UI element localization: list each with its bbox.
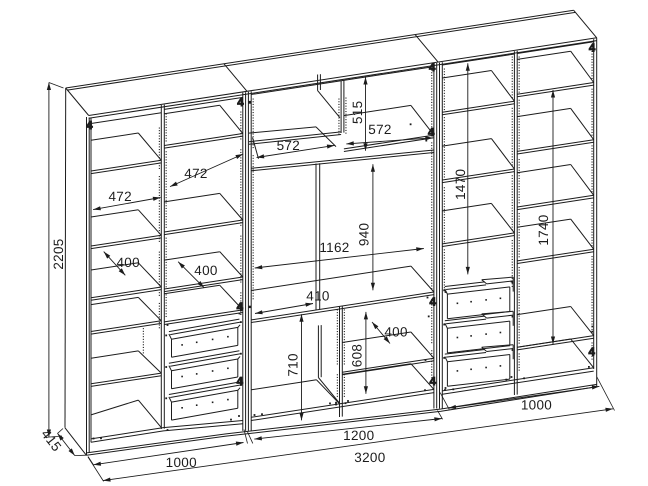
svg-text:1000: 1000 [166, 455, 197, 470]
svg-text:3200: 3200 [354, 450, 385, 465]
svg-text:472: 472 [108, 189, 131, 204]
svg-text:572: 572 [368, 122, 391, 137]
svg-text:4: 4 [429, 62, 436, 74]
svg-text:400: 400 [384, 324, 407, 339]
svg-text:4: 4 [429, 296, 436, 308]
svg-text:4: 4 [589, 42, 596, 54]
svg-text:4: 4 [429, 376, 436, 388]
svg-text:515: 515 [350, 101, 365, 124]
svg-text:410: 410 [306, 289, 329, 304]
svg-text:1162: 1162 [319, 240, 349, 255]
svg-text:4: 4 [237, 302, 244, 314]
svg-text:4: 4 [588, 347, 595, 359]
svg-text:472: 472 [184, 166, 207, 181]
svg-text:1470: 1470 [453, 169, 468, 200]
svg-text:4: 4 [86, 120, 93, 132]
svg-text:1740: 1740 [536, 214, 551, 245]
svg-text:4: 4 [237, 376, 244, 388]
svg-text:4: 4 [237, 97, 244, 109]
svg-text:2205: 2205 [51, 238, 66, 269]
svg-text:4: 4 [428, 127, 435, 139]
svg-text:400: 400 [116, 255, 139, 270]
svg-text:400: 400 [194, 263, 217, 278]
svg-text:1200: 1200 [343, 428, 374, 443]
svg-text:940: 940 [357, 223, 372, 246]
svg-text:1000: 1000 [521, 398, 552, 413]
svg-text:572: 572 [277, 138, 300, 153]
svg-text:710: 710 [285, 353, 300, 376]
svg-text:608: 608 [350, 344, 365, 367]
